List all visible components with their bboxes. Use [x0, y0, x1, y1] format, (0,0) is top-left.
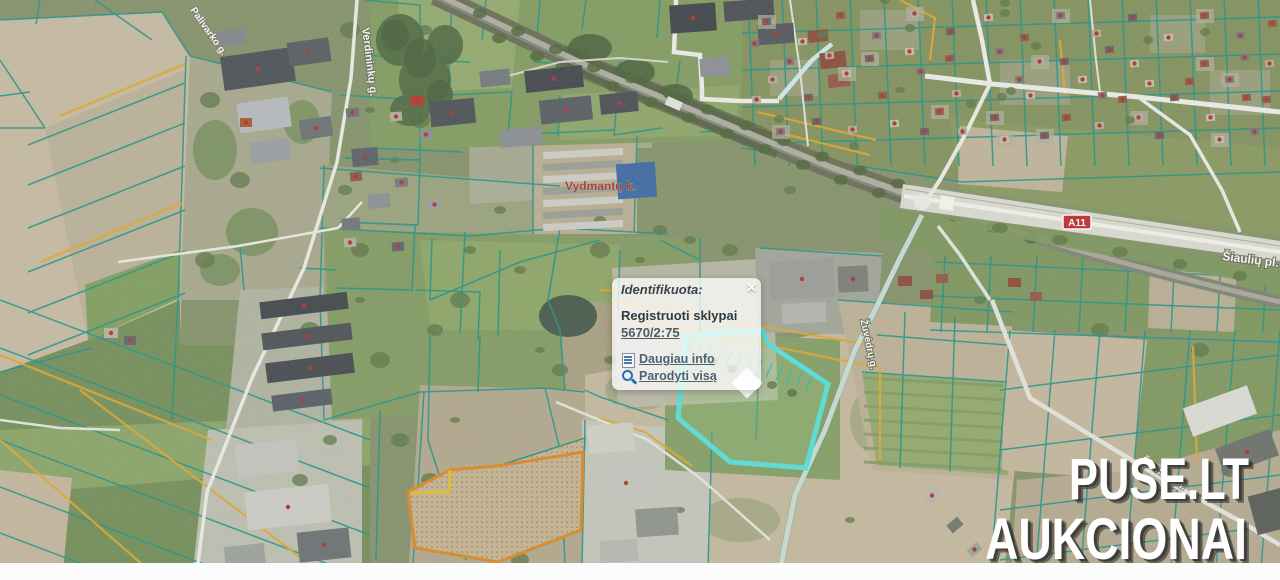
svg-text:PUSE.LT: PUSE.LT	[1069, 447, 1249, 512]
